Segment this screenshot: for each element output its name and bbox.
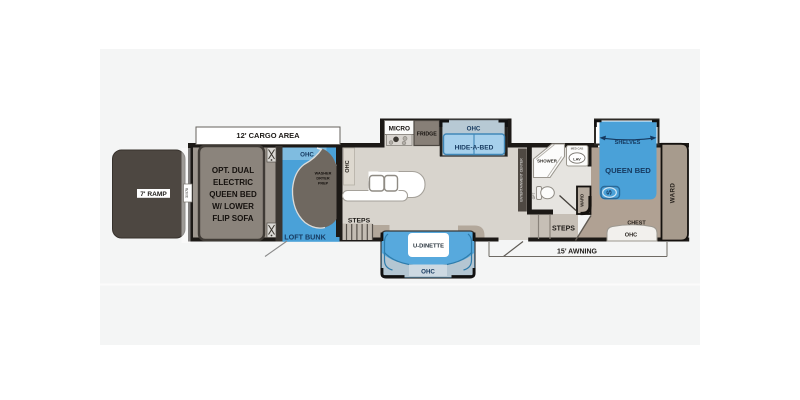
svg-text:S: S bbox=[604, 190, 613, 195]
svg-text:WASHER: WASHER bbox=[315, 172, 332, 176]
svg-text:PREP: PREP bbox=[318, 182, 329, 186]
svg-text:OHC: OHC bbox=[467, 125, 481, 132]
svg-text:OHC: OHC bbox=[300, 152, 314, 159]
svg-text:WARD: WARD bbox=[670, 183, 677, 204]
svg-text:30X78: 30X78 bbox=[185, 188, 189, 198]
svg-text:DRYER: DRYER bbox=[316, 177, 329, 181]
svg-text:STEPS: STEPS bbox=[348, 218, 371, 225]
svg-text:U-DINETTE: U-DINETTE bbox=[413, 244, 444, 250]
svg-text:ENTERTAINMENT CENTER: ENTERTAINMENT CENTER bbox=[519, 158, 523, 202]
svg-text:LOFT BUNK: LOFT BUNK bbox=[284, 232, 326, 241]
svg-text:MED CAB: MED CAB bbox=[571, 146, 584, 150]
svg-text:QUEEN BED: QUEEN BED bbox=[209, 190, 257, 199]
svg-text:OPT. DUAL: OPT. DUAL bbox=[212, 166, 254, 175]
svg-text:WARD: WARD bbox=[580, 194, 585, 207]
svg-text:OPT: OPT bbox=[532, 193, 536, 200]
svg-text:15' AWNING: 15' AWNING bbox=[557, 249, 597, 256]
svg-text:LAV: LAV bbox=[573, 156, 581, 161]
svg-text:W/ LOWER: W/ LOWER bbox=[212, 202, 254, 211]
svg-text:HIDE-A-BED: HIDE-A-BED bbox=[455, 144, 494, 151]
svg-text:OHC: OHC bbox=[345, 160, 351, 172]
svg-text:OHC: OHC bbox=[421, 269, 435, 276]
svg-text:7' RAMP: 7' RAMP bbox=[140, 191, 167, 198]
svg-text:SHELVES: SHELVES bbox=[615, 140, 641, 146]
svg-text:OHC: OHC bbox=[625, 233, 637, 239]
svg-text:FRIDGE: FRIDGE bbox=[417, 131, 437, 137]
svg-text:STEPS: STEPS bbox=[552, 226, 575, 233]
svg-text:MICRO: MICRO bbox=[389, 126, 410, 133]
svg-text:SHOWER: SHOWER bbox=[537, 159, 558, 164]
svg-text:ELECTRIC: ELECTRIC bbox=[213, 178, 253, 187]
svg-text:QUEEN BED: QUEEN BED bbox=[605, 166, 651, 175]
svg-text:FLIP SOFA: FLIP SOFA bbox=[212, 214, 253, 223]
svg-text:12' CARGO AREA: 12' CARGO AREA bbox=[236, 131, 300, 140]
